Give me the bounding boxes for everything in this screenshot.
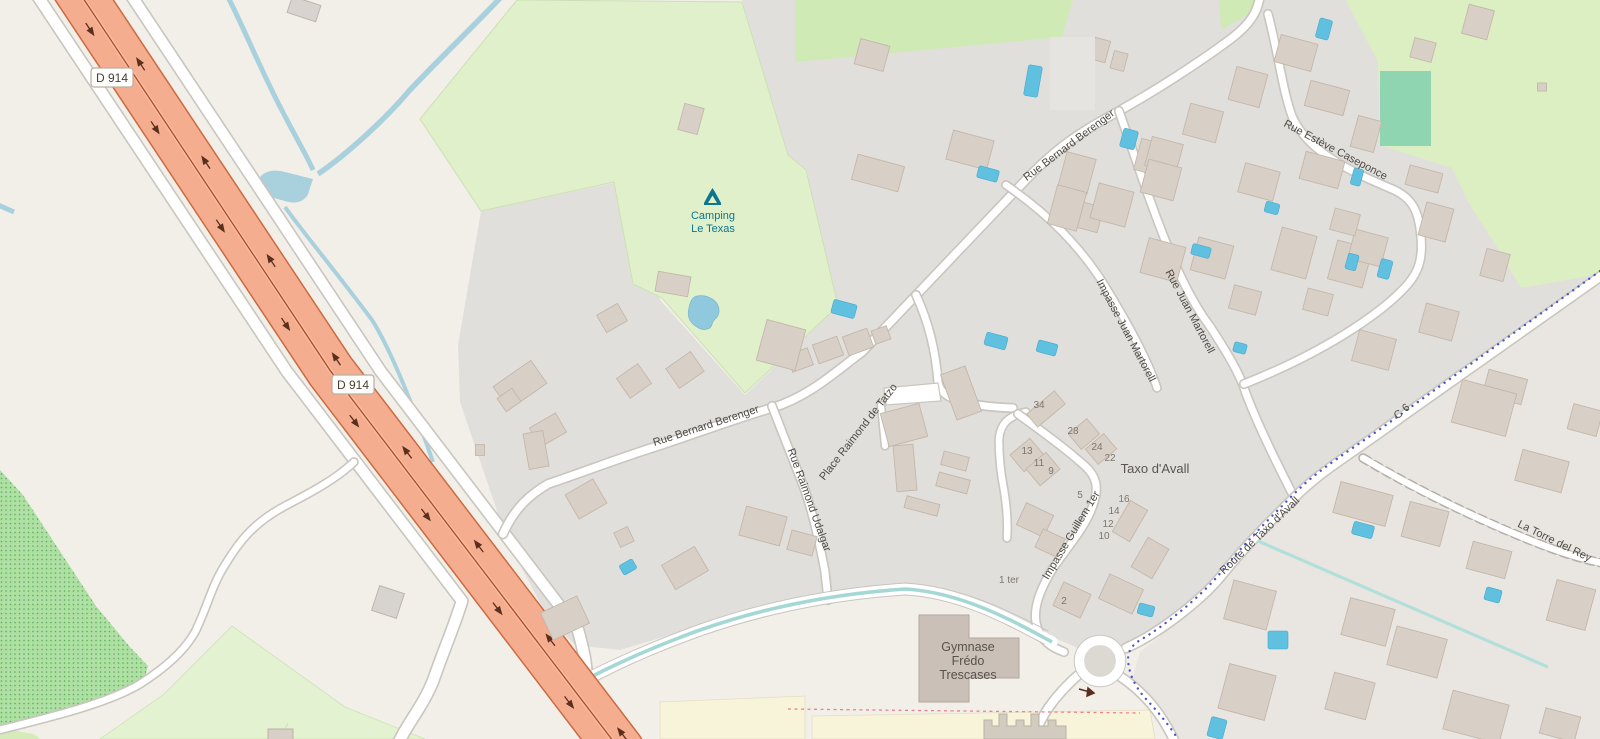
svg-text:Gymnase: Gymnase [941, 640, 995, 654]
svg-text:5: 5 [1077, 490, 1083, 501]
svg-text:D 914: D 914 [96, 71, 128, 85]
svg-text:28: 28 [1067, 426, 1079, 437]
svg-text:Le Texas: Le Texas [691, 223, 735, 235]
svg-text:14: 14 [1108, 506, 1120, 517]
svg-text:11: 11 [1034, 458, 1045, 469]
svg-text:34: 34 [1033, 400, 1045, 411]
svg-text:Frédo: Frédo [952, 654, 985, 668]
svg-text:Camping: Camping [691, 210, 735, 222]
svg-text:22: 22 [1104, 453, 1116, 464]
svg-text:10: 10 [1098, 531, 1110, 542]
svg-text:16: 16 [1118, 494, 1130, 505]
svg-text:9: 9 [1048, 466, 1054, 477]
svg-text:13: 13 [1021, 446, 1033, 457]
svg-text:24: 24 [1091, 442, 1103, 453]
svg-text:D 914: D 914 [337, 378, 369, 392]
svg-text:Trescases: Trescases [939, 668, 996, 682]
svg-text:Taxo d'Avall: Taxo d'Avall [1121, 461, 1190, 476]
svg-text:12: 12 [1102, 519, 1114, 530]
svg-text:2: 2 [1061, 596, 1067, 607]
svg-text:1 ter: 1 ter [999, 575, 1020, 586]
